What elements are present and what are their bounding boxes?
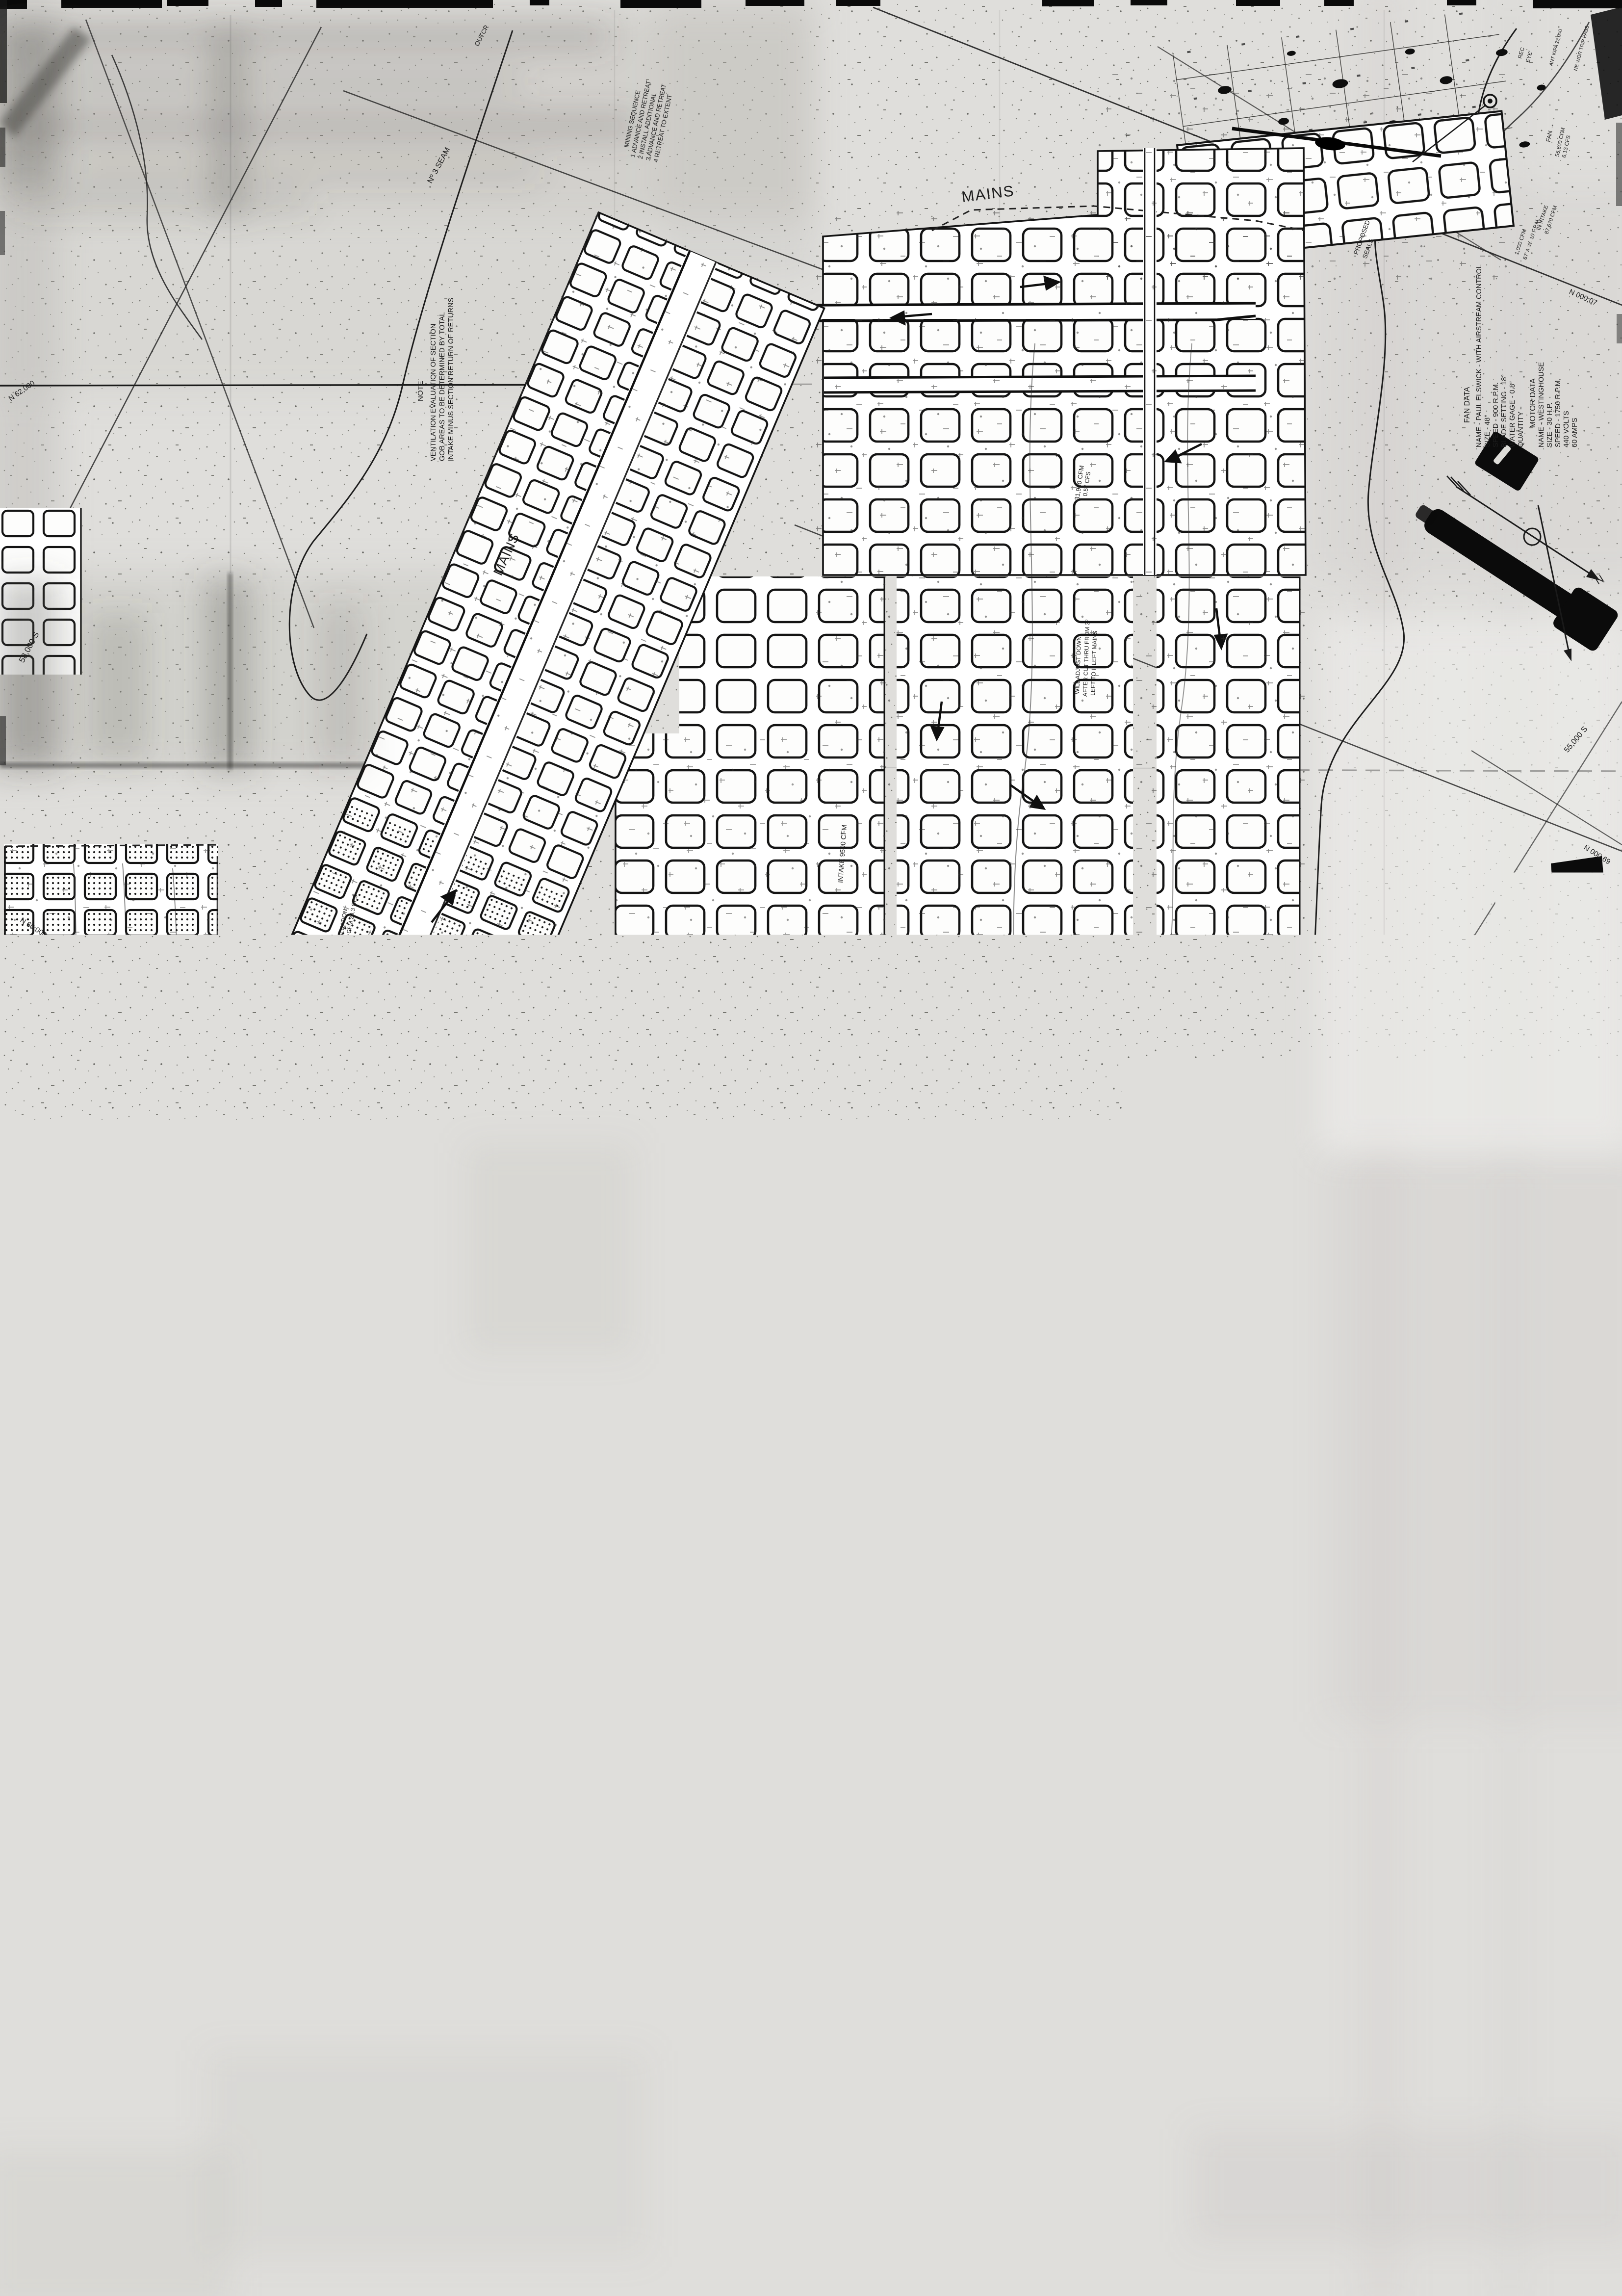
svg-text:WATER GAGE - 0.8″: WATER GAGE - 0.8″ [1509, 381, 1517, 447]
svg-text:SPEED - 1750 R.P.M.: SPEED - 1750 R.P.M. [1554, 378, 1562, 447]
svg-text:BLADE SETTING - 18°: BLADE SETTING - 18° [1500, 374, 1508, 447]
svg-text:W.G. 2.5″: W.G. 2.5″ [1389, 1329, 1396, 1352]
svg-text:VENTILATION EVALUATION OF SECT: VENTILATION EVALUATION OF SECTION [430, 324, 438, 461]
svg-text:200: 200 [1554, 935, 1563, 947]
svg-text:NO MINING BELOW: NO MINING BELOW [1442, 1049, 1449, 1114]
svg-text:INTAKE MINUS SECTION RETURN OF: INTAKE MINUS SECTION RETURN OF RETURNS [447, 298, 455, 461]
svg-text:0: 0 [1555, 1025, 1564, 1029]
svg-text:GOB AREAS TO BE DETERMINED BY: GOB AREAS TO BE DETERMINED BY TOTAL [438, 312, 446, 461]
svg-text:NAME - WESTINGHOUSE: NAME - WESTINGHOUSE [1538, 362, 1545, 447]
svg-text:900 RPM: 900 RPM [1357, 1329, 1364, 1352]
svg-text:60 AMPS: 60 AMPS [1571, 418, 1579, 447]
svg-text:440 VOLTS: 440 VOLTS [1563, 411, 1571, 447]
svg-text:QUANTITY -: QUANTITY - [1517, 407, 1525, 447]
svg-text:NOTE: NOTE [416, 381, 425, 401]
svg-text:100: 100 [1556, 1063, 1565, 1075]
svg-text:PLAN: PLAN [658, 1304, 665, 1320]
svg-text:100: 100 [1554, 980, 1563, 992]
svg-text:SPEED - 900 R.P.M.: SPEED - 900 R.P.M. [1492, 382, 1500, 447]
svg-text:MOTOR DATA: MOTOR DATA [1529, 378, 1537, 428]
svg-text:SIZE - 30 H.P.: SIZE - 30 H.P. [1546, 402, 1554, 447]
svg-text:NO 5 SEAM ABOVE – 100′ INTERVA: NO 5 SEAM ABOVE – 100′ INTERVAL – NO MIN… [1432, 982, 1440, 1144]
svg-text:SIZE - 48″: SIZE - 48″ [1484, 415, 1492, 447]
svg-text:FAN DATA: FAN DATA [1463, 387, 1471, 423]
svg-text:NO OIL OR GAS WELLS: NO OIL OR GAS WELLS [1452, 1051, 1460, 1128]
svg-text:ACTIVE SECTION: ACTIVE SECTION [449, 1317, 471, 1505]
svg-text:NAME - PAUL ELSWICK - WITH AI: NAME - PAUL ELSWICK - WITH AIRSTREAM CON… [1475, 264, 1483, 447]
